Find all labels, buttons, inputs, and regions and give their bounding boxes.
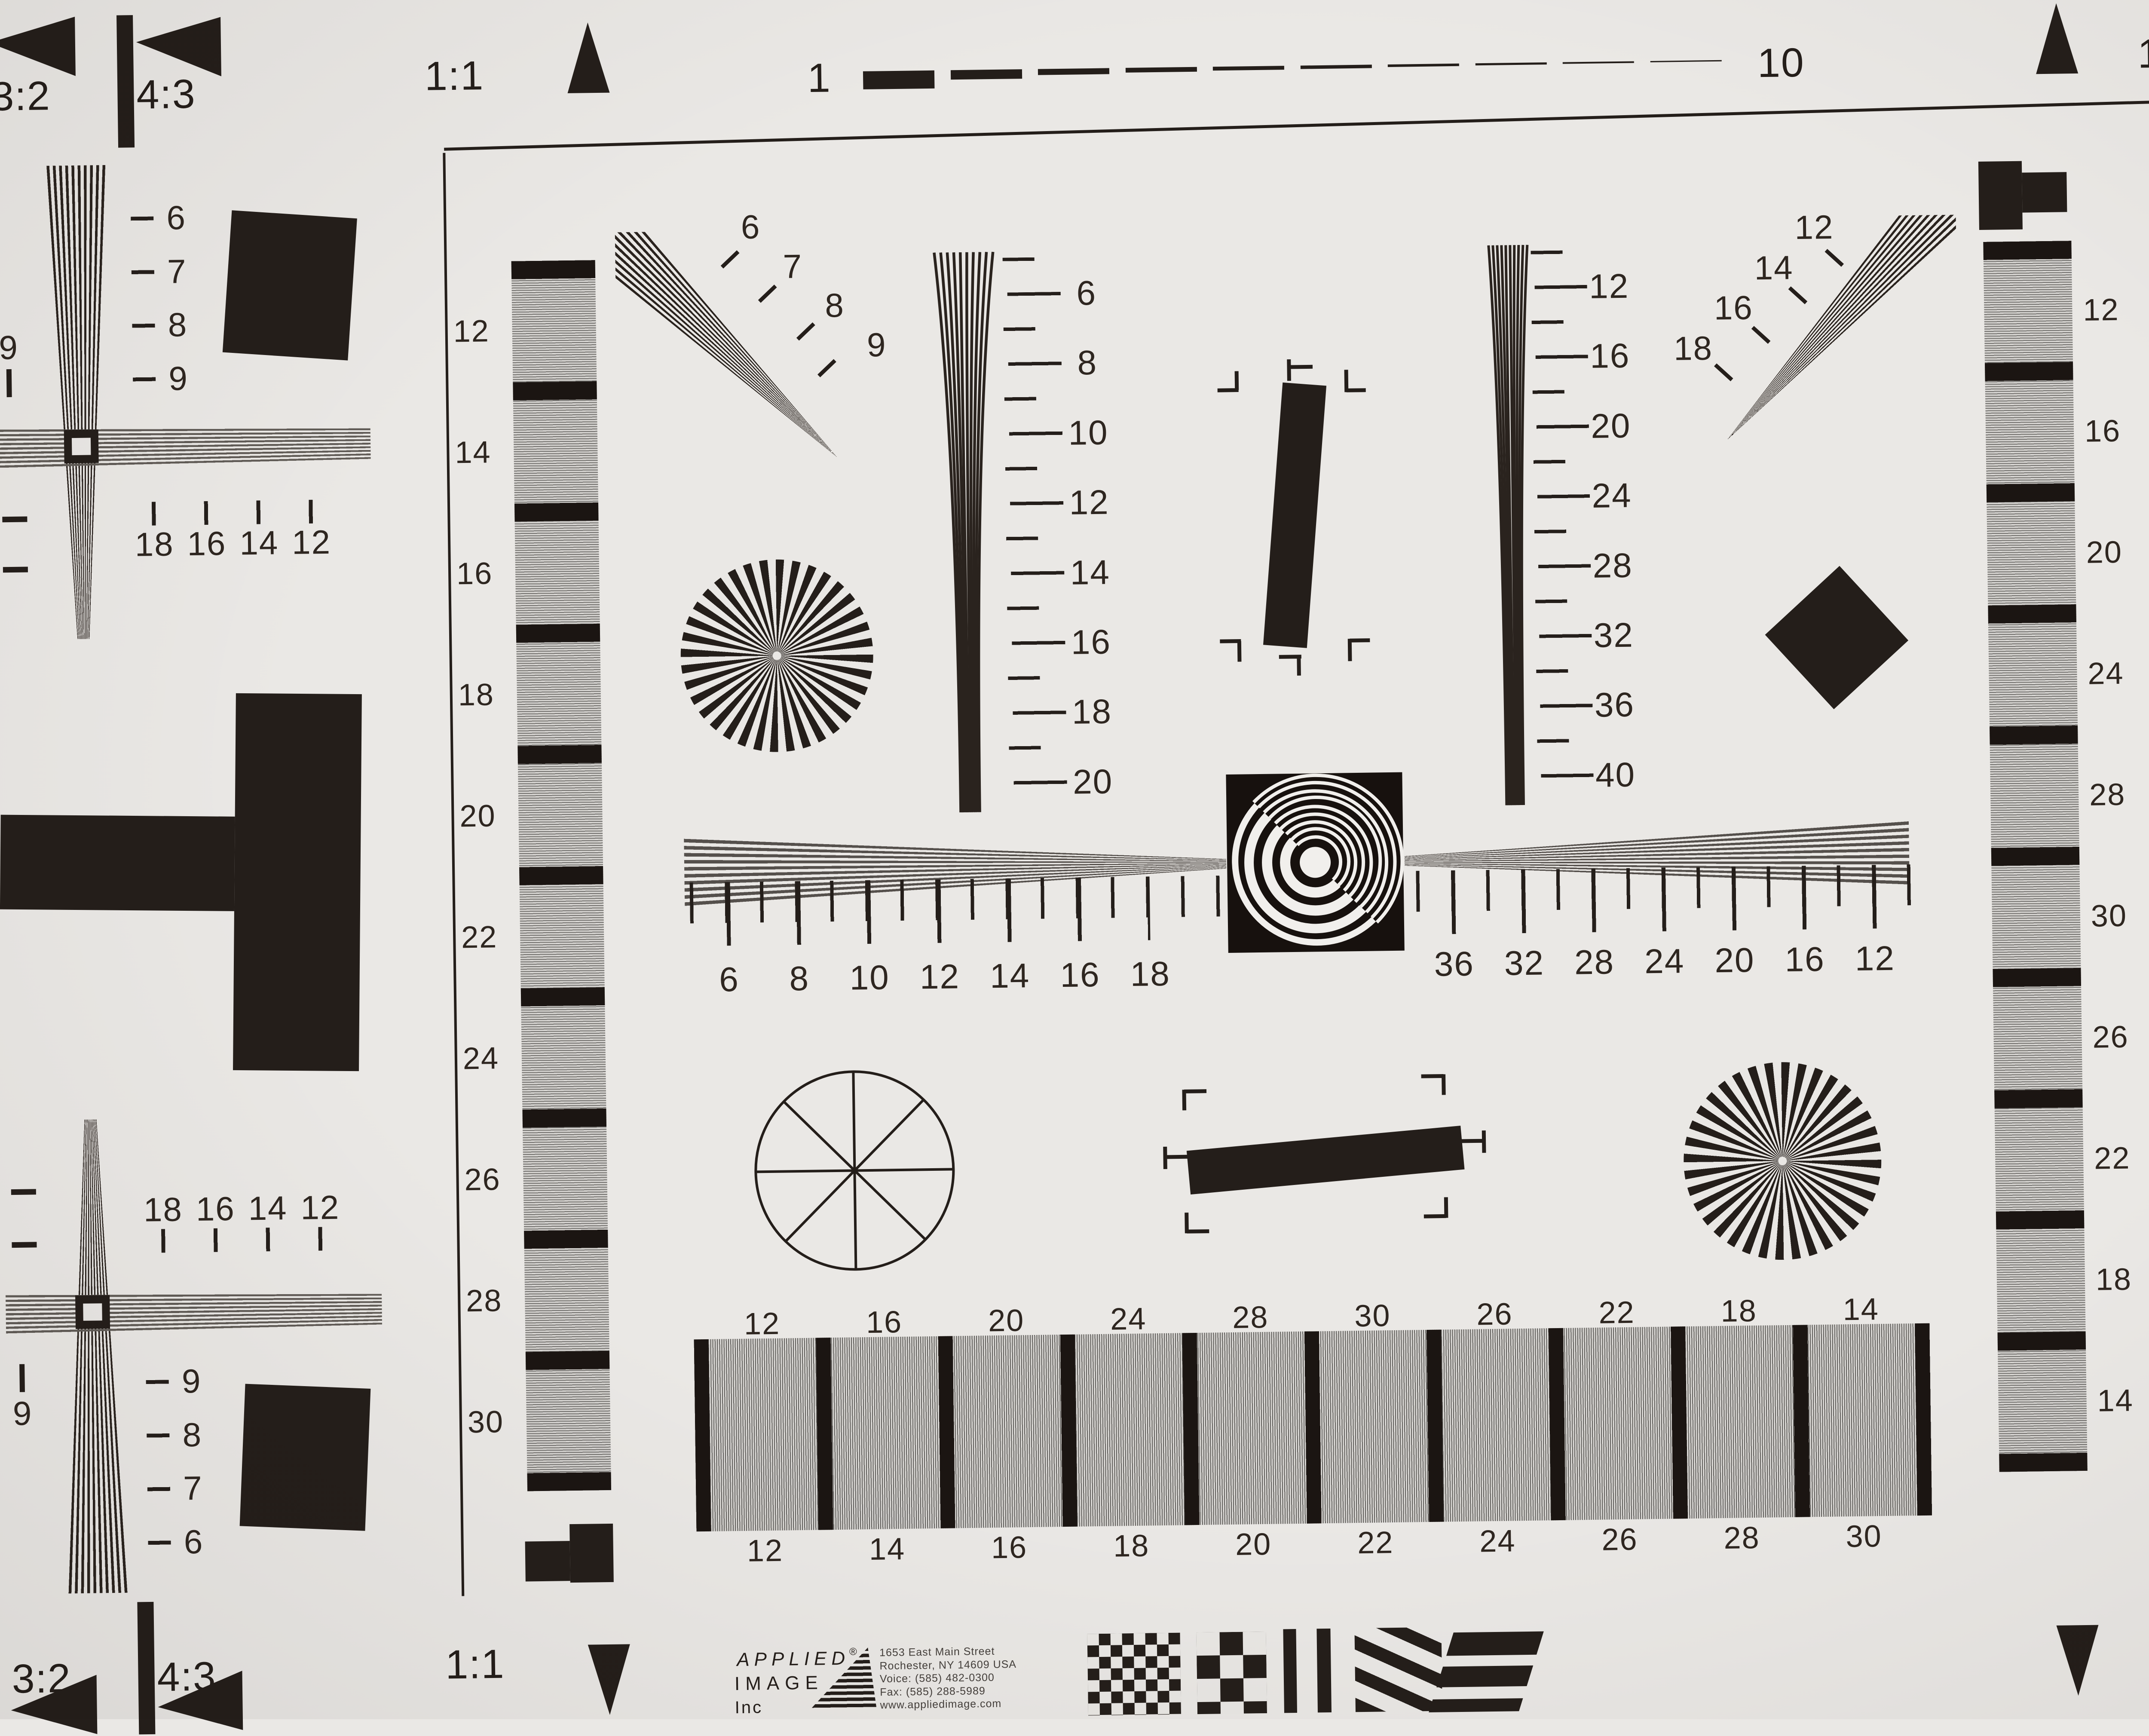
triangle-down-icon [2056, 1625, 2099, 1696]
fine-checkerboard [1087, 1633, 1181, 1716]
right-strip-label-0: 12 [2083, 292, 2119, 328]
logo-address-line-1: Rochester, NY 14609 USA [879, 1658, 1016, 1672]
ratio-label-bl-11: 1:1 [445, 1641, 505, 1689]
taper-dash-4 [1125, 67, 1197, 73]
bottom-bar-top-label-7: 22 [1598, 1295, 1635, 1331]
ratio-label-tl-11: 1:1 [424, 52, 484, 100]
tilted-fan-left-label-1: 7 [783, 247, 803, 286]
right-wedge-label-7: 40 [1595, 755, 1635, 795]
left-strip-label-9: 30 [467, 1404, 504, 1440]
cross-scale-label-3: 12 [292, 523, 331, 562]
left-upper-fan-dashes [131, 217, 156, 385]
bottom-bar-bottom-label-5: 22 [1357, 1525, 1394, 1561]
taper-dash-1 [863, 70, 935, 89]
bottom-bar-bottom-label-7: 26 [1601, 1522, 1638, 1558]
ruler-right-label-5: 16 [1785, 940, 1825, 980]
right-wedge-label-2: 20 [1591, 406, 1631, 446]
edge-dash [2, 516, 27, 522]
left-strip-label-4: 20 [459, 798, 496, 834]
ratio-label-bl-32: 3:2 [12, 1655, 71, 1703]
bullseye-target [1226, 772, 1404, 953]
bottom-bar-top-label-5: 30 [1354, 1298, 1391, 1334]
cross-scale-label-2: 14 [239, 523, 279, 563]
logo-image: IMAGE [735, 1672, 823, 1695]
left-strip-label-5: 22 [461, 919, 498, 955]
logo-applied: APPLIED [737, 1648, 850, 1671]
left-upper-fan-label-2: 8 [168, 305, 188, 345]
left-strip-label-6: 24 [462, 1041, 499, 1076]
bottom-bar-top-label-8: 18 [1720, 1293, 1757, 1329]
ruler-left-short-ticks [690, 876, 1221, 923]
left-upper-fan-label-1: 7 [167, 252, 187, 291]
vertical-bar-patch [1316, 1629, 1332, 1712]
bottom-bar-bottom-label-4: 20 [1235, 1527, 1272, 1562]
cross-scale-label-0: 18 [135, 525, 174, 564]
right-wedge-label-3: 24 [1592, 476, 1632, 516]
cross-fan-horizontal [0, 423, 371, 468]
left-strip-label-3: 18 [458, 677, 494, 713]
ruler-left-label-2: 10 [849, 958, 890, 998]
right-strip-label-6: 26 [2092, 1020, 2129, 1055]
right-wedge-label-5: 32 [1593, 615, 1634, 655]
ruler-right-label-1: 32 [1504, 943, 1544, 983]
taper-dash-3 [1038, 68, 1109, 75]
edge-label-9: 9 [0, 328, 18, 367]
center-wedge-label-0: 6 [1076, 273, 1097, 313]
left-lower-fan-label-1: 8 [182, 1415, 202, 1455]
logo-address-line-3: Fax: (585) 288-5989 [880, 1685, 986, 1699]
left-strip-label-0: 12 [453, 313, 490, 349]
ruler-left-label-1: 8 [789, 959, 810, 999]
right-strip-label-9: 14 [2097, 1383, 2134, 1419]
left-upper-fan-label-0: 6 [166, 198, 187, 238]
left-strip-label-2: 16 [456, 556, 493, 591]
bottom-bar-bottom-label-9: 30 [1846, 1519, 1882, 1554]
edge-tick [6, 369, 12, 397]
triangle-up-icon [2035, 3, 2078, 74]
center-wedge-short-ticks [1003, 257, 1041, 765]
right-wedge-label-0: 12 [1589, 266, 1629, 306]
bottom-bar-top-label-1: 16 [866, 1304, 903, 1340]
cross-center-square [64, 429, 99, 463]
right-wedge-label-4: 28 [1592, 545, 1633, 585]
taper-scale-end: 10 [1757, 40, 1805, 87]
ruler-right-label-4: 20 [1714, 940, 1755, 980]
taper-scale-start: 1 [807, 55, 831, 102]
cross-fan-horizontal [6, 1288, 382, 1334]
cross-scale-label-2: 14 [248, 1188, 288, 1228]
ruler-left-label-5: 16 [1060, 955, 1100, 995]
tilted-fan-right-label-3: 18 [1674, 329, 1713, 368]
cross-center-square [75, 1295, 110, 1329]
left-upper-fan-label-3: 9 [168, 359, 189, 398]
crop-brackets-horizontal-bar [1154, 1063, 1496, 1248]
flag-triangle-icon [0, 17, 76, 77]
bottom-bar-bottom-label-6: 24 [1479, 1523, 1516, 1559]
bottom-bar-top-label-6: 26 [1476, 1296, 1513, 1332]
black-square [240, 1384, 371, 1531]
center-wedge-label-1: 8 [1077, 343, 1098, 383]
center-wedge-label-3: 12 [1069, 483, 1109, 523]
right-strip-label-3: 24 [2088, 656, 2124, 692]
left-lower-fan-label-2: 7 [183, 1469, 203, 1508]
tilted-fan-left-label-2: 8 [825, 286, 845, 325]
left-upper-cross-ticks [152, 500, 315, 526]
right-wedge-label-1: 16 [1590, 336, 1630, 376]
left-strip-label-7: 26 [464, 1162, 501, 1197]
ruler-left-label-4: 14 [990, 956, 1030, 996]
ratio-label-tl-43: 4:3 [136, 71, 196, 119]
tilted-fan-left [615, 229, 859, 481]
right-strip-label-5: 30 [2091, 898, 2127, 934]
left-strip-label-1: 14 [455, 435, 491, 470]
t-block-left [0, 692, 363, 1073]
center-funnel-wedge [929, 249, 1013, 817]
edge-dash [3, 566, 28, 573]
ruler-left-label-3: 12 [919, 957, 960, 997]
center-wedge-label-7: 20 [1072, 762, 1113, 802]
tilted-fan-left-label-0: 6 [741, 208, 761, 247]
right-strip-label-7: 22 [2094, 1141, 2131, 1176]
ratio-label-tl-32: 3:2 [0, 73, 51, 120]
bottom-bar-top-label-4: 28 [1232, 1300, 1269, 1335]
cross-scale-label-0: 18 [143, 1190, 183, 1229]
bottom-bar-top-label-0: 12 [744, 1306, 780, 1342]
edge-tick [19, 1364, 25, 1392]
bottom-bar-top-label-3: 24 [1110, 1301, 1147, 1337]
cross-fan-vertical [46, 1119, 141, 1594]
bottom-bar-top-label-9: 14 [1843, 1292, 1879, 1327]
ruler-right-label-2: 28 [1574, 942, 1614, 982]
left-lower-fan-dashes [146, 1380, 171, 1548]
triangle-down-icon [588, 1644, 631, 1715]
tilted-fan-right [1715, 215, 1959, 467]
center-wedge-label-6: 18 [1071, 692, 1112, 732]
triangle-up-icon [566, 22, 609, 93]
black-square [223, 210, 357, 360]
cross-scale-label-1: 16 [187, 524, 227, 563]
bottom-bar-separators [694, 1323, 1934, 1532]
tilted-fan-right-label-0: 12 [1794, 208, 1834, 247]
logo-address-line-4: www.appliedimage.com [880, 1698, 1001, 1712]
right-strip-label-1: 16 [2085, 413, 2121, 449]
center-wedge-label-5: 16 [1071, 622, 1111, 662]
spoked-circle [753, 1069, 956, 1272]
taper-dash-2 [950, 69, 1022, 80]
bottom-bar-bottom-label-2: 16 [991, 1530, 1028, 1565]
left-lower-cross-ticks [161, 1227, 324, 1253]
ratio-label-bl-43: 4:3 [157, 1653, 217, 1701]
right-strip-label-8: 18 [2095, 1262, 2132, 1298]
edge-dash [12, 1242, 37, 1248]
crop-brackets-vertical-bar [1206, 355, 1451, 684]
cross-scale-label-3: 12 [300, 1188, 340, 1228]
left-strip-label-8: 28 [466, 1283, 502, 1319]
bottom-bar-bottom-label-0: 12 [747, 1533, 783, 1569]
center-wedge-label-2: 10 [1068, 413, 1108, 453]
right-wedge-short-ticks [1531, 251, 1569, 758]
left-strip-separators [511, 260, 611, 1491]
iso-chart: 3:2 4:3 1:1 1:1 4:3 3:2 3:2 4:3 1:1 1:1 … [0, 0, 2149, 1719]
ruler-right-label-3: 24 [1644, 941, 1685, 981]
ratio-label-tr-11: 1:1 [2137, 30, 2149, 78]
right-strip-label-2: 20 [2086, 535, 2122, 570]
center-wedge-label-4: 14 [1070, 552, 1110, 592]
bottom-bar-bottom-label-3: 18 [1113, 1528, 1150, 1564]
right-strip-separators [1983, 241, 2087, 1472]
tilted-fan-right-label-2: 16 [1714, 288, 1753, 328]
tilted-fan-left-label-3: 9 [866, 325, 887, 365]
bottom-bar-bottom-label-8: 28 [1723, 1520, 1760, 1556]
ruler-left-label-6: 18 [1130, 954, 1170, 994]
right-wedge-label-6: 36 [1594, 685, 1635, 725]
ruler-left-label-0: 6 [719, 960, 740, 1000]
ruler-right-short-ticks [1416, 864, 1915, 912]
diagonal-stripe-patch [1354, 1627, 1442, 1712]
right-strip-label-4: 28 [2089, 777, 2126, 813]
ruler-right-label-6: 12 [1855, 939, 1895, 979]
vertical-bar-patch [1283, 1629, 1297, 1713]
logo-inc: Inc [735, 1698, 763, 1718]
edge-label-9: 9 [12, 1394, 33, 1433]
logo-address-line-0: 1653 East Main Street [879, 1645, 995, 1659]
bottom-bar-bottom-label-1: 14 [869, 1531, 905, 1567]
logo-address-line-2: Voice: (585) 482-0300 [880, 1672, 995, 1685]
logo-reg-icon: ® [849, 1646, 857, 1658]
edge-dash [11, 1189, 36, 1195]
bottom-bar-top-label-2: 20 [988, 1303, 1025, 1338]
chart-artwork: 3:2 4:3 1:1 1:1 4:3 3:2 3:2 4:3 1:1 1:1 … [0, 0, 2149, 1736]
tilted-fan-right-label-1: 14 [1754, 248, 1794, 288]
cross-fan-vertical [34, 165, 128, 640]
left-lower-fan-label-0: 9 [181, 1362, 202, 1401]
coarse-checkerboard [1197, 1632, 1267, 1714]
left-lower-fan-label-3: 6 [184, 1522, 204, 1562]
cross-scale-label-1: 16 [196, 1189, 235, 1229]
ruler-right-label-0: 36 [1434, 944, 1474, 984]
